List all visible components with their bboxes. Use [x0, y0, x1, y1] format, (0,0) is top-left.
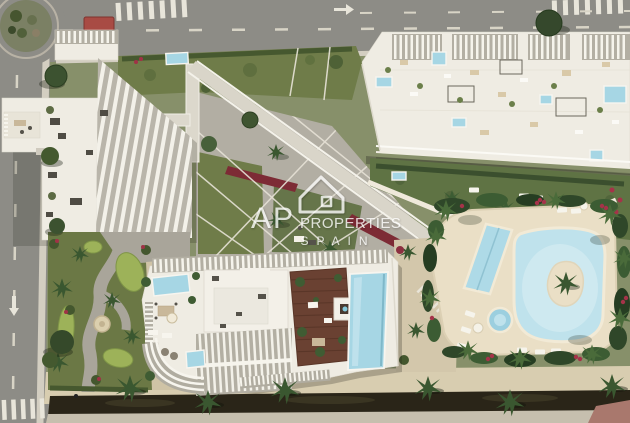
lagoon-pool-complex — [419, 191, 630, 370]
tree — [242, 112, 258, 128]
street-tree — [536, 10, 562, 36]
street-lamp — [74, 394, 78, 398]
watermark-brand-right: PROPERTIES — [300, 215, 401, 232]
sun-lounger — [469, 188, 479, 193]
parasol — [473, 323, 483, 333]
northeast-building — [362, 32, 630, 182]
tree — [329, 55, 343, 69]
terrace-pool — [152, 274, 190, 296]
watermark-brand-sub: SPAIN — [300, 234, 375, 248]
watermark-brand-left: AP — [251, 202, 295, 235]
roof-pergola-combs — [392, 34, 630, 60]
street-tree — [41, 147, 59, 165]
nw-roof-terrace — [4, 112, 40, 138]
tree — [201, 136, 217, 152]
south-building — [141, 248, 402, 396]
terrace-pool — [186, 350, 205, 368]
street-tree — [49, 218, 65, 234]
garden-pool — [392, 172, 406, 180]
street-tree — [50, 330, 74, 354]
aerial-render-residential-complex: AP PROPERTIES SPAIN — [0, 0, 630, 423]
garden-pool — [166, 52, 189, 64]
street-tree — [45, 65, 67, 87]
